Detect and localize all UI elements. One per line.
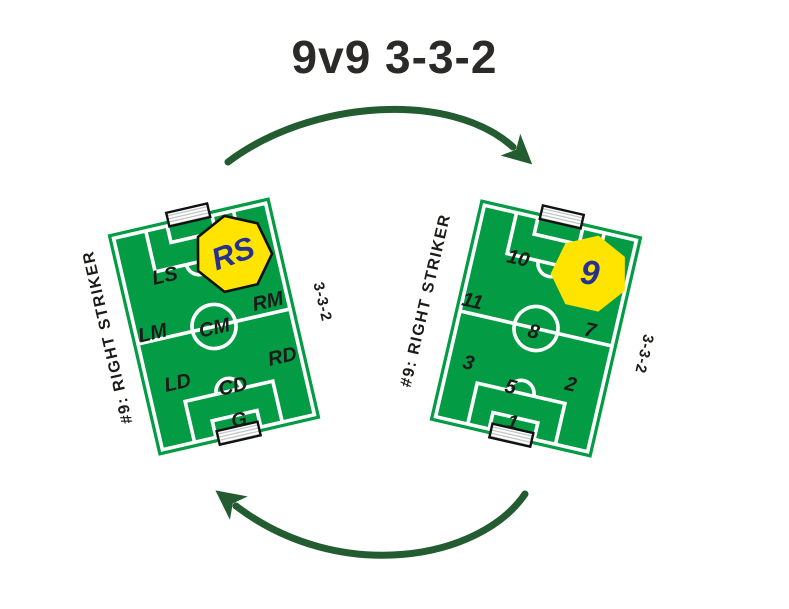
bottom-arrow-icon — [236, 494, 525, 555]
right-field: #9: RIGHT STRIKER 3-3-2 10 11 8 7 3 5 2 … — [430, 199, 643, 458]
formation-diagram: 9v9 3-3-2 — [0, 0, 789, 609]
right-highlight-label: 9 — [578, 253, 601, 294]
left-field: #9: RIGHT STRIKER 3-3-2 LS RM LM CM RD L… — [108, 197, 321, 456]
page-title: 9v9 3-3-2 — [0, 31, 789, 84]
top-arrow-icon — [228, 109, 513, 162]
